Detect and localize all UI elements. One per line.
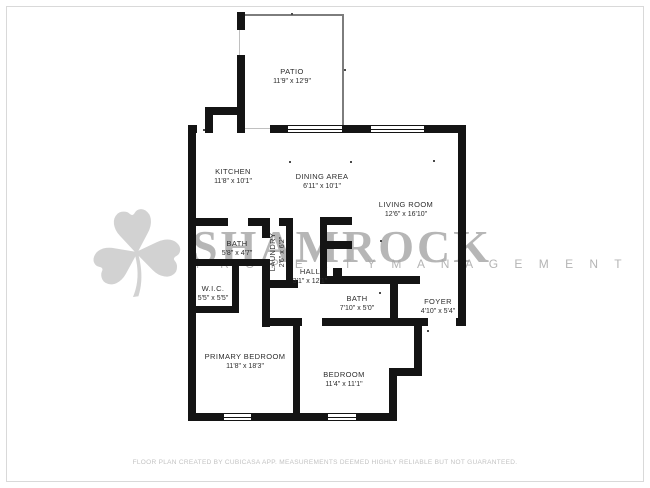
room-labels: PATIO 11'9" x 12'9" KITCHEN 11'8" x 10'1… (0, 0, 650, 488)
room-label-primary-bedroom: PRIMARY BEDROOM 11'8" x 18'3" (205, 352, 286, 370)
room-label-bath-1: BATH 5'8" x 4'7" (222, 239, 253, 257)
room-label-kitchen: KITCHEN 11'8" x 10'1" (214, 167, 252, 185)
room-label-laundry: LAUNDRY 2'6" x 6'2" (268, 233, 286, 272)
room-label-dining-area: DINING AREA 6'11" x 10'1" (296, 172, 349, 190)
room-label-foyer: FOYER 4'10" x 5'4" (421, 297, 456, 315)
floor-plan-page: ☘ SHAMROCK P R O P E R T Y M A N A G E M… (0, 0, 650, 488)
room-label-wic: W.I.C. 5'5" x 5'5" (198, 284, 229, 302)
room-label-living-room: LIVING ROOM 12'6" x 16'10" (379, 200, 433, 218)
room-label-hall: HALL 3'1" x 12'1" (293, 267, 328, 285)
room-label-bedroom: BEDROOM 11'4" x 11'1" (323, 370, 365, 388)
room-label-patio: PATIO 11'9" x 12'9" (273, 67, 311, 85)
room-label-bath-2: BATH 7'10" x 5'0" (340, 294, 375, 312)
footer-disclaimer: FLOOR PLAN CREATED BY CUBICASA APP. MEAS… (0, 459, 650, 466)
